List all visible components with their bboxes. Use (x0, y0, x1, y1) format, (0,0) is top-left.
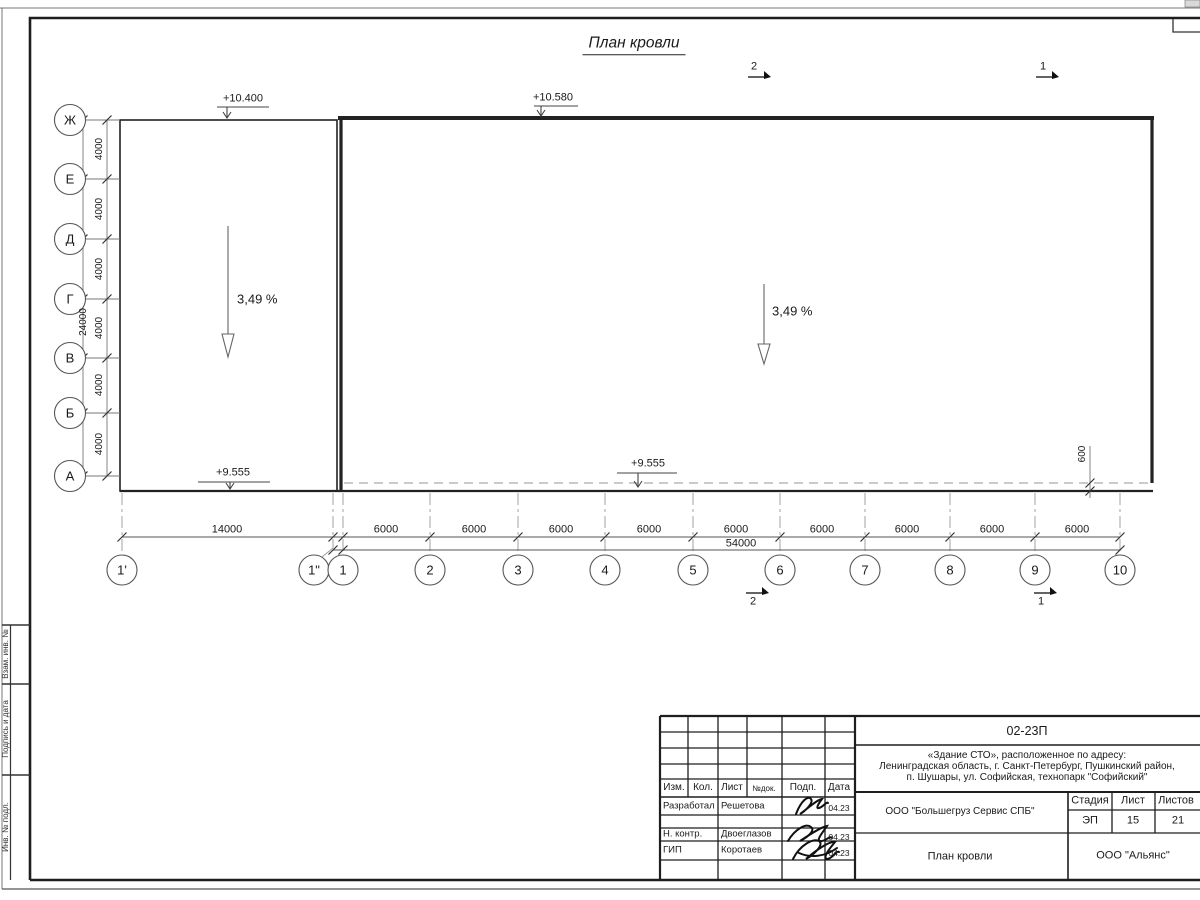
dim-label-6000: 6000 (724, 525, 748, 536)
side-label-vzam-inv: Взам. инв. № (2, 629, 10, 679)
dim-label-6000: 6000 (980, 525, 1004, 536)
name-razrabotal: Решетова (721, 801, 765, 811)
axis-letter-circle: Д (66, 233, 75, 246)
section-cut-marks (746, 71, 1059, 595)
section-mark-1-top: 1 (1040, 62, 1046, 73)
axis-number-circle: 7 (861, 564, 868, 577)
name-nkontr: Двоеглазов (721, 829, 772, 839)
section-mark-2-bottom: 2 (750, 597, 756, 608)
axis-number-circle: 4 (601, 564, 608, 577)
section-mark-1-bottom: 1 (1038, 597, 1044, 608)
axis-number-circle: 2 (426, 564, 433, 577)
page-title: План кровли (583, 35, 686, 55)
letter-axes (55, 105, 121, 492)
axis-number-circle: 10 (1113, 564, 1127, 577)
dim-label-6000: 6000 (1065, 525, 1089, 536)
drawing-sheet: План кровли +10.400 +10.580 +9.555 +9.55… (0, 0, 1200, 900)
dim-label-6000: 6000 (637, 525, 661, 536)
role-razrabotal: Разработал (663, 801, 715, 811)
date-gip: 04.23 (828, 849, 849, 858)
axis-letter-circle: В (66, 352, 75, 365)
elevation-bottom-mid: +9.555 (631, 459, 665, 470)
side-label-inv-podl: Инв. № подл. (2, 802, 10, 852)
axis-number-circle: 1' (117, 564, 127, 577)
titleblock-address-line1: «Здание СТО», расположенное по адресу: (928, 751, 1126, 761)
col-header-ndok: №док. (752, 785, 775, 793)
number-axis-circles (107, 555, 1135, 585)
elevation-top-right: +10.580 (533, 93, 573, 104)
dim-label-4000: 4000 (95, 138, 105, 160)
axis-letter-circle: Б (66, 407, 75, 420)
axis-number-circle: 3 (514, 564, 521, 577)
dim-label-4000: 4000 (95, 433, 105, 455)
dim-label-6000: 6000 (549, 525, 573, 536)
titleblock-address-line3: п. Шушары, ул. Софийская, технопарк "Соф… (907, 773, 1148, 783)
titleblock-org: ООО "Альянс" (1096, 851, 1170, 862)
stage-value: ЭП (1082, 816, 1098, 827)
number-axes (107, 493, 1135, 585)
col-header-list: Лист (721, 783, 743, 793)
role-nkontr: Н. контр. (663, 829, 702, 839)
titleblock-doc-code: 02-23П (1007, 725, 1048, 738)
role-gip: ГИП (663, 845, 682, 855)
date-razrabotal: 04.23 (828, 804, 849, 813)
titleblock-company: ООО "Большегруз Сервис СПБ" (885, 807, 1034, 817)
sheets-label: Листов (1158, 796, 1194, 807)
titleblock-address-line2: Ленинградская область, г. Санкт-Петербур… (879, 762, 1175, 772)
axis-letter-circle: Ж (64, 114, 76, 127)
dim-label-4000: 4000 (95, 317, 105, 339)
axis-letter-circle: Г (66, 293, 73, 306)
col-header-kol: Кол. (693, 783, 713, 793)
corner-artifact (1185, 0, 1200, 7)
offset-dim-label: 600 (1078, 446, 1088, 463)
axis-number-circle: 1 (339, 564, 346, 577)
col-header-data: Дата (828, 783, 850, 793)
section-mark-2-top: 2 (751, 62, 757, 73)
dim-label-4000: 4000 (95, 198, 105, 220)
elevation-top-left: +10.400 (223, 94, 263, 105)
name-gip: Коротаев (721, 845, 762, 855)
dim-label-4000: 4000 (95, 258, 105, 280)
axis-number-circle: 6 (776, 564, 783, 577)
sheets-total: 21 (1172, 816, 1184, 827)
axis-extension-lines (122, 493, 1120, 553)
dim-label-6000: 6000 (374, 525, 398, 536)
dim-label-54000: 54000 (726, 539, 757, 550)
elevation-bottom-left: +9.555 (216, 468, 250, 479)
slope-label-left: 3,49 % (237, 293, 277, 306)
number-axis-ticks (118, 533, 1125, 555)
dim-label-6000: 6000 (810, 525, 834, 536)
sheet-number: 15 (1127, 816, 1139, 827)
dim-label-6000: 6000 (462, 525, 486, 536)
axis-number-circle: 5 (689, 564, 696, 577)
sheet-label: Лист (1121, 796, 1145, 807)
slope-label-right: 3,49 % (772, 305, 812, 318)
stage-label: Стадия (1071, 796, 1109, 807)
axis-letter-circle: Е (66, 173, 75, 186)
dim-label-24000: 24000 (79, 308, 89, 336)
dim-label-6000: 6000 (895, 525, 919, 536)
axis-letter-circle: А (66, 470, 75, 483)
titleblock-doc-title: План кровли (928, 852, 993, 863)
date-nkontr: 04.23 (828, 833, 849, 842)
signature-razrabotal (796, 798, 828, 814)
side-label-podpis-data: Подпись и дата (2, 700, 10, 758)
axis-number-circle: 8 (946, 564, 953, 577)
col-header-podp: Подп. (790, 783, 817, 793)
axis-number-circle: 1" (308, 564, 320, 577)
dim-label-14000: 14000 (212, 525, 243, 536)
col-header-izm: Изм. (663, 783, 684, 793)
dim-label-4000: 4000 (95, 374, 105, 396)
axis-number-circle: 9 (1031, 564, 1038, 577)
